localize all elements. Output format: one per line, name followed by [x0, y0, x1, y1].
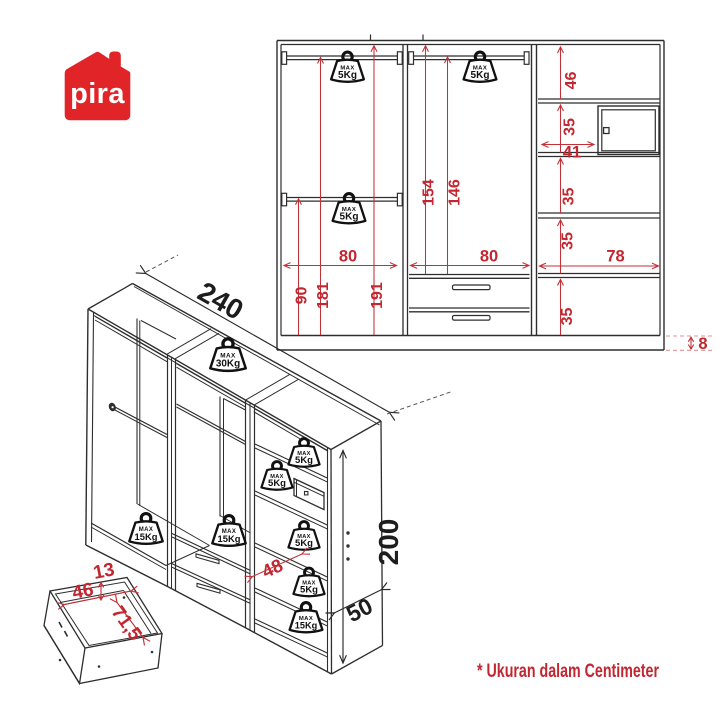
svg-text:41: 41 [563, 144, 581, 162]
svg-text:pira: pira [70, 78, 125, 110]
svg-text:13: 13 [92, 559, 117, 584]
svg-text:78: 78 [606, 248, 624, 266]
svg-text:46: 46 [71, 579, 96, 604]
svg-text:35: 35 [562, 118, 579, 136]
svg-text:5Kg: 5Kg [268, 478, 286, 489]
svg-text:5Kg: 5Kg [300, 584, 318, 595]
svg-text:15Kg: 15Kg [135, 532, 158, 542]
svg-text:191: 191 [369, 282, 386, 309]
svg-text:181: 181 [315, 282, 332, 309]
svg-text:5Kg: 5Kg [471, 70, 490, 81]
svg-text:46: 46 [563, 72, 580, 90]
svg-text:35: 35 [559, 308, 576, 326]
svg-text:80: 80 [339, 248, 357, 266]
svg-text:35: 35 [561, 188, 578, 206]
svg-text:8: 8 [698, 335, 707, 353]
svg-text:35: 35 [560, 232, 577, 250]
svg-text:15Kg: 15Kg [218, 534, 241, 544]
svg-text:5Kg: 5Kg [340, 211, 359, 222]
svg-text:15Kg: 15Kg [295, 620, 317, 630]
svg-text:30Kg: 30Kg [216, 359, 240, 370]
svg-text:154: 154 [421, 179, 438, 206]
svg-text:5Kg: 5Kg [295, 538, 313, 549]
svg-text:200: 200 [373, 519, 404, 566]
svg-text:80: 80 [480, 248, 498, 266]
svg-text:90: 90 [294, 287, 311, 305]
svg-text:146: 146 [447, 179, 464, 206]
svg-text:5Kg: 5Kg [295, 455, 313, 466]
svg-text:5Kg: 5Kg [338, 70, 357, 81]
svg-text:* Ukuran dalam Centimeter: * Ukuran dalam Centimeter [477, 661, 659, 682]
